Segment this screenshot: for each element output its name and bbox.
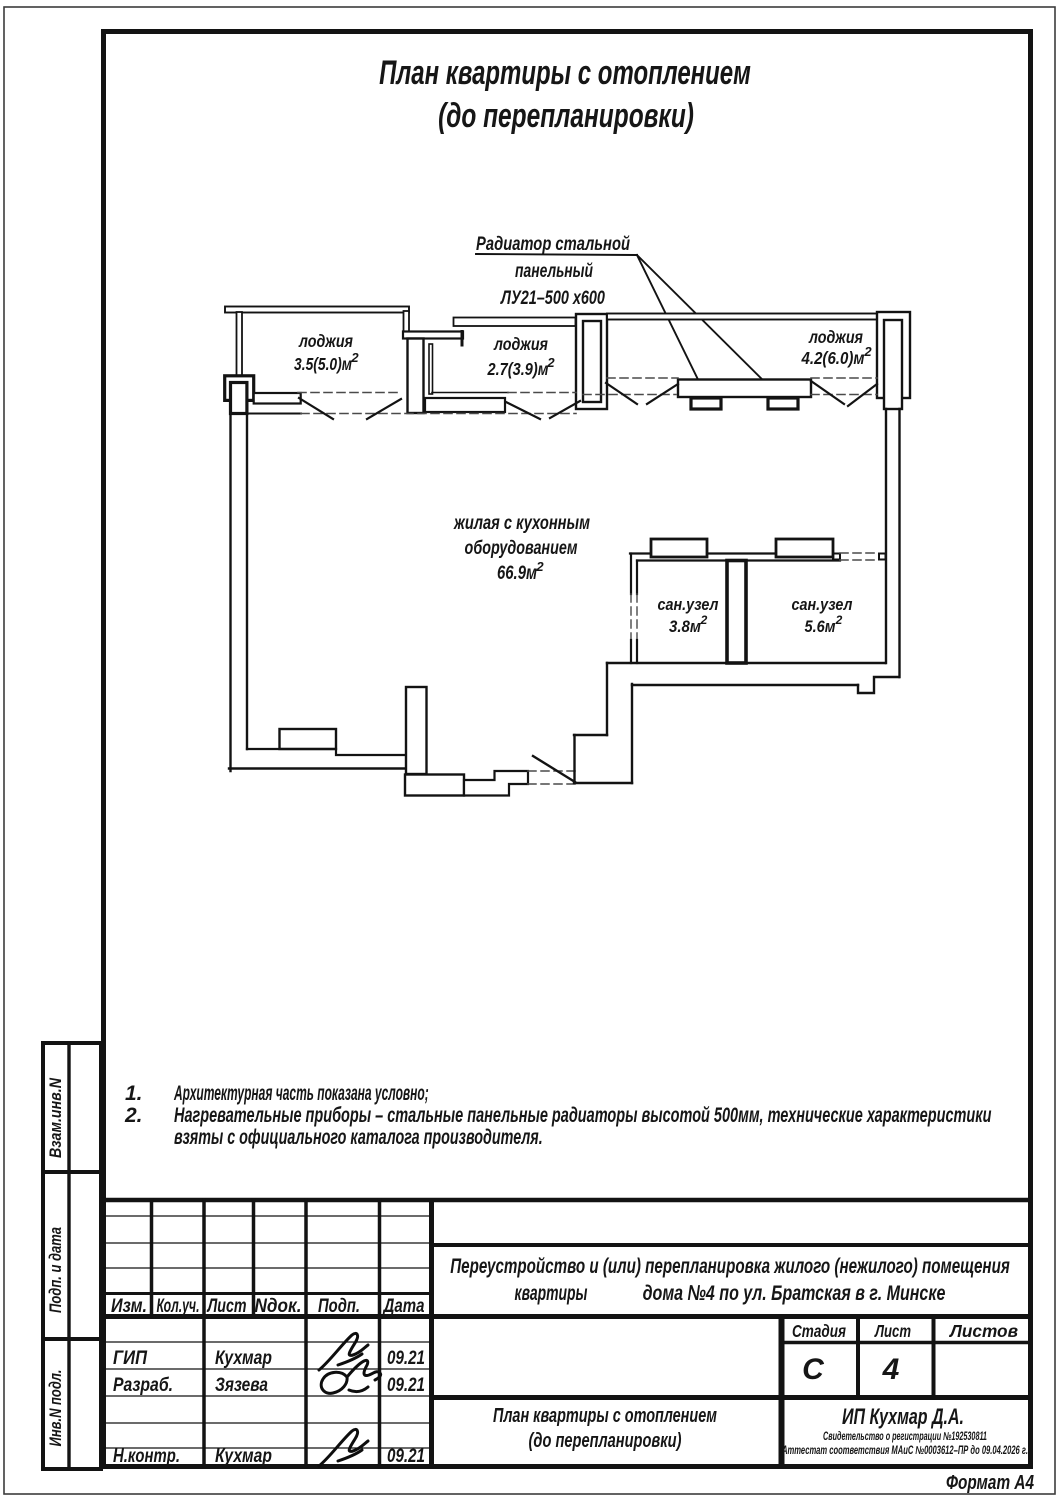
svg-text:Архитектурная часть показана у: Архитектурная часть показана условно;: [173, 1082, 428, 1105]
svg-text:Кухмар: Кухмар: [215, 1445, 272, 1467]
svg-text:1.: 1.: [125, 1082, 143, 1105]
svg-text:2: 2: [700, 613, 708, 627]
svg-text:Аттестат соответствия МАиС №00: Аттестат соответствия МАиС №0003612–ПР д…: [781, 1445, 1028, 1458]
svg-text:панельный: панельный: [515, 260, 593, 282]
svg-text:Нагревательные приборы – сталь: Нагревательные приборы – стальные панель…: [174, 1103, 991, 1126]
svg-text:ГИП: ГИП: [113, 1347, 148, 1368]
svg-text:Свидетельство о регистрации №1: Свидетельство о регистрации №192530811: [823, 1430, 987, 1443]
svg-text:План квартиры с отоплением: План квартиры с отоплением: [493, 1404, 717, 1427]
svg-text:План квартиры с отоплением: План квартиры с отоплением: [379, 54, 751, 92]
svg-text:Взам.инв.N: Взам.инв.N: [47, 1077, 65, 1158]
svg-text:Nдок.: Nдок.: [255, 1295, 302, 1316]
svg-text:сан.узел: сан.узел: [792, 596, 853, 614]
svg-text:(до перепланировки): (до перепланировки): [438, 97, 694, 135]
svg-text:Изм.: Изм.: [111, 1295, 147, 1317]
svg-text:66.9м: 66.9м: [497, 562, 537, 583]
svg-text:оборудованием: оборудованием: [465, 537, 578, 558]
svg-text:4.2(6.0)м: 4.2(6.0)м: [801, 349, 865, 368]
svg-text:Разраб.: Разраб.: [113, 1374, 173, 1396]
svg-text:Лист: Лист: [207, 1295, 247, 1317]
svg-text:ЛУ21–500 х600: ЛУ21–500 х600: [499, 287, 605, 308]
svg-text:09.21: 09.21: [387, 1346, 425, 1368]
svg-text:09.21: 09.21: [387, 1373, 425, 1395]
svg-text:жилая с кухонным: жилая с кухонным: [453, 512, 590, 533]
svg-text:2: 2: [835, 613, 843, 627]
svg-text:взяты с официального каталога: взяты с официального каталога производит…: [174, 1125, 543, 1148]
svg-text:Радиатор стальной: Радиатор стальной: [476, 233, 630, 254]
svg-text:2: 2: [863, 344, 872, 359]
svg-text:Инв.N подл.: Инв.N подл.: [46, 1370, 65, 1447]
svg-text:квартиры: квартиры: [515, 1281, 588, 1305]
svg-text:5.6м: 5.6м: [805, 618, 836, 636]
svg-text:лоджия: лоджия: [808, 329, 863, 348]
svg-text:ИП Кухмар Д.А.: ИП Кухмар Д.А.: [842, 1406, 964, 1430]
svg-text:Зязева: Зязева: [215, 1373, 268, 1395]
svg-text:Кухмар: Кухмар: [215, 1347, 272, 1369]
svg-text:Подп.: Подп.: [318, 1295, 360, 1316]
svg-text:Н.контр.: Н.контр.: [113, 1445, 180, 1466]
svg-text:Стадия: Стадия: [792, 1322, 846, 1341]
svg-text:Листов: Листов: [948, 1321, 1018, 1341]
svg-text:Лист: Лист: [874, 1322, 911, 1341]
svg-text:сан.узел: сан.узел: [658, 596, 719, 614]
svg-text:2: 2: [535, 559, 544, 574]
svg-text:Формат А4: Формат А4: [946, 1471, 1034, 1494]
svg-text:2.7(3.9)м: 2.7(3.9)м: [487, 360, 549, 380]
svg-text:Переустройство и (или) перепла: Переустройство и (или) перепланировка жи…: [450, 1253, 1010, 1277]
svg-text:лоджия: лоджия: [493, 336, 548, 355]
svg-text:3.5(5.0)м: 3.5(5.0)м: [294, 356, 352, 375]
svg-text:Подп. и дата: Подп. и дата: [46, 1227, 65, 1313]
svg-text:4: 4: [882, 1353, 900, 1386]
svg-text:09.21: 09.21: [387, 1444, 425, 1466]
svg-text:3.8м: 3.8м: [669, 617, 701, 636]
svg-text:С: С: [802, 1353, 825, 1386]
svg-text:дома №4 по ул. Братская в г. М: дома №4 по ул. Братская в г. Минске: [643, 1282, 946, 1306]
svg-text:2.: 2.: [124, 1104, 143, 1127]
svg-text:лоджия: лоджия: [298, 333, 353, 352]
svg-text:(до перепланировки): (до перепланировки): [529, 1429, 682, 1452]
svg-text:2: 2: [546, 355, 555, 370]
svg-text:Дата: Дата: [382, 1294, 425, 1316]
svg-text:2: 2: [350, 350, 359, 365]
svg-text:Кол.уч.: Кол.уч.: [157, 1297, 200, 1317]
